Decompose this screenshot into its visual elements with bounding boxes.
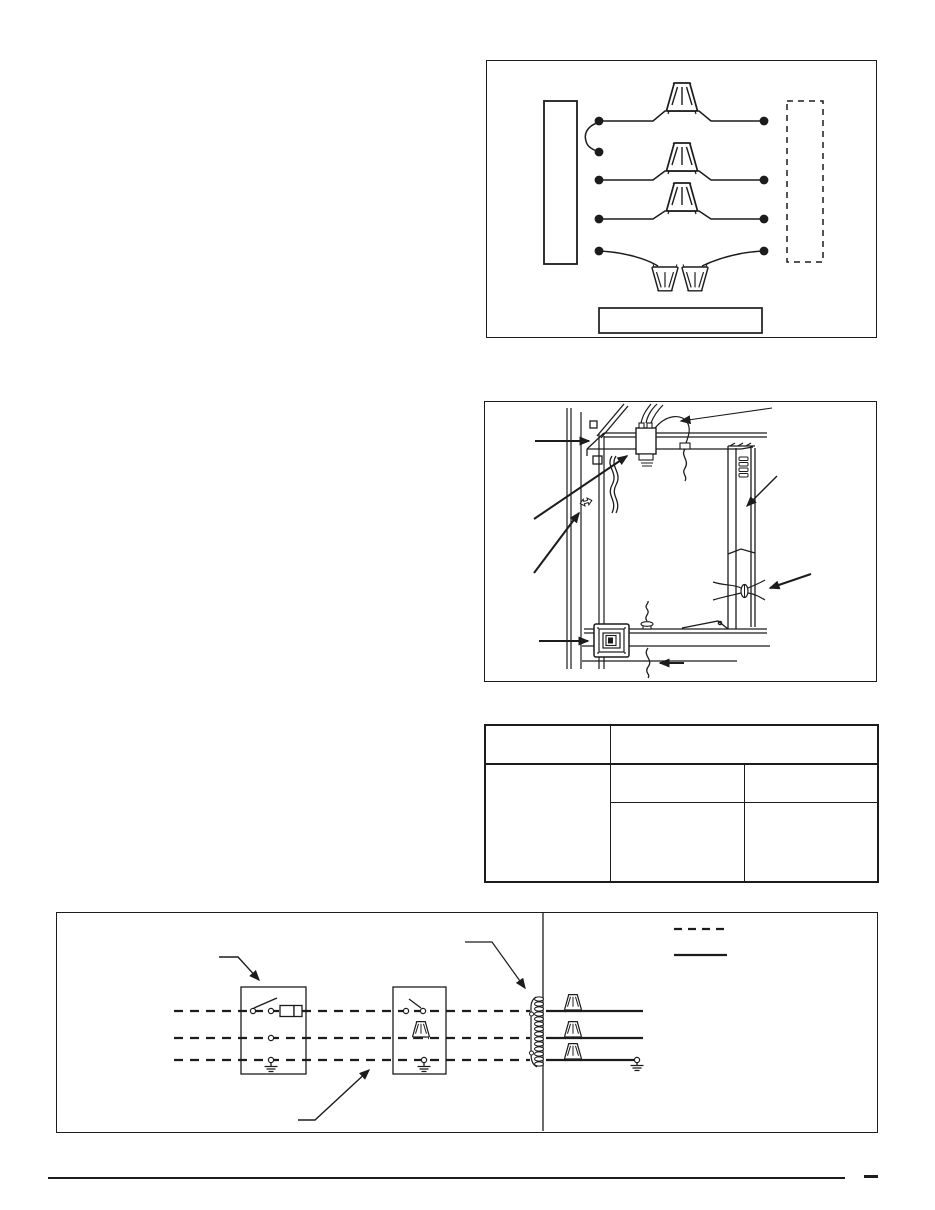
wire-grommet — [741, 585, 748, 598]
footer-rule — [48, 1177, 845, 1179]
table-cell-header-right — [610, 725, 878, 764]
cable-clamp — [680, 443, 690, 449]
wall-switch — [594, 624, 629, 657]
table-cell-mid-row2 — [610, 764, 744, 802]
manual-page: { "page": { "background": "#ffffff", "in… — [0, 0, 935, 1210]
wire-nut-icon — [565, 1022, 582, 1040]
vent-marks — [739, 457, 748, 477]
page-number-dash — [864, 1175, 878, 1178]
field-wiring-lines — [174, 1011, 530, 1060]
wire-hookup-figure — [486, 60, 877, 338]
control-panel-box — [544, 101, 577, 264]
junction-box — [636, 423, 656, 466]
wire-row-4-right — [702, 251, 764, 266]
callout-arrows — [219, 942, 525, 1120]
fuse-block-icon — [280, 1006, 302, 1017]
wire-nut-icon — [667, 183, 698, 214]
wire-nut-icon — [667, 143, 698, 174]
arrow-wall — [534, 513, 579, 573]
header-beam — [587, 421, 767, 464]
hanging-wire-bottom — [646, 648, 649, 678]
installation-svg — [485, 402, 875, 680]
wire-row-4-left — [599, 251, 658, 266]
wire-row-2 — [599, 171, 764, 180]
grommet-wires — [713, 580, 765, 600]
right-frame-member — [728, 443, 755, 629]
spec-table — [484, 724, 879, 883]
terminal-dot — [268, 1035, 273, 1040]
arrow-box-a — [219, 957, 259, 980]
arrow-grommet — [770, 574, 811, 588]
wiring-schematic-svg — [57, 913, 876, 1131]
wire-hookup-svg — [487, 61, 876, 336]
wire-row-1 — [599, 111, 764, 121]
wire-nut-icon — [667, 83, 698, 114]
table-cell-right-row2 — [744, 764, 878, 802]
table-cell-right-row3 — [744, 802, 878, 882]
factory-wiring-lines — [546, 1011, 643, 1060]
wiring-schematic-figure — [56, 912, 878, 1133]
dashed-panel-box — [787, 101, 823, 262]
arrow-box-b — [298, 1070, 369, 1120]
wire-nut-inverted-icon — [682, 264, 708, 290]
spec-table-wrap — [484, 724, 879, 883]
terminal-coil — [530, 997, 544, 1067]
wire-nut-inverted-icon — [652, 264, 678, 290]
arrow-supply-wire — [681, 408, 772, 421]
beam-connector — [641, 601, 653, 629]
table-cell-header-left — [485, 725, 610, 764]
label-plate-box — [599, 308, 762, 333]
arrow-terminal-coil — [465, 942, 525, 988]
table-cell-left-body — [485, 764, 610, 882]
table-cell-mid-row3 — [610, 802, 744, 882]
callout-arrows — [534, 408, 811, 663]
wire-nut-icon — [565, 1044, 582, 1062]
wire-row-3 — [599, 211, 764, 219]
wire-nut-icon — [565, 995, 582, 1013]
installation-figure — [484, 401, 877, 682]
wire-nut-icon — [413, 1022, 430, 1040]
switch-icon — [250, 998, 277, 1014]
hanging-wire — [684, 449, 687, 481]
pigtail-wire — [585, 123, 597, 151]
